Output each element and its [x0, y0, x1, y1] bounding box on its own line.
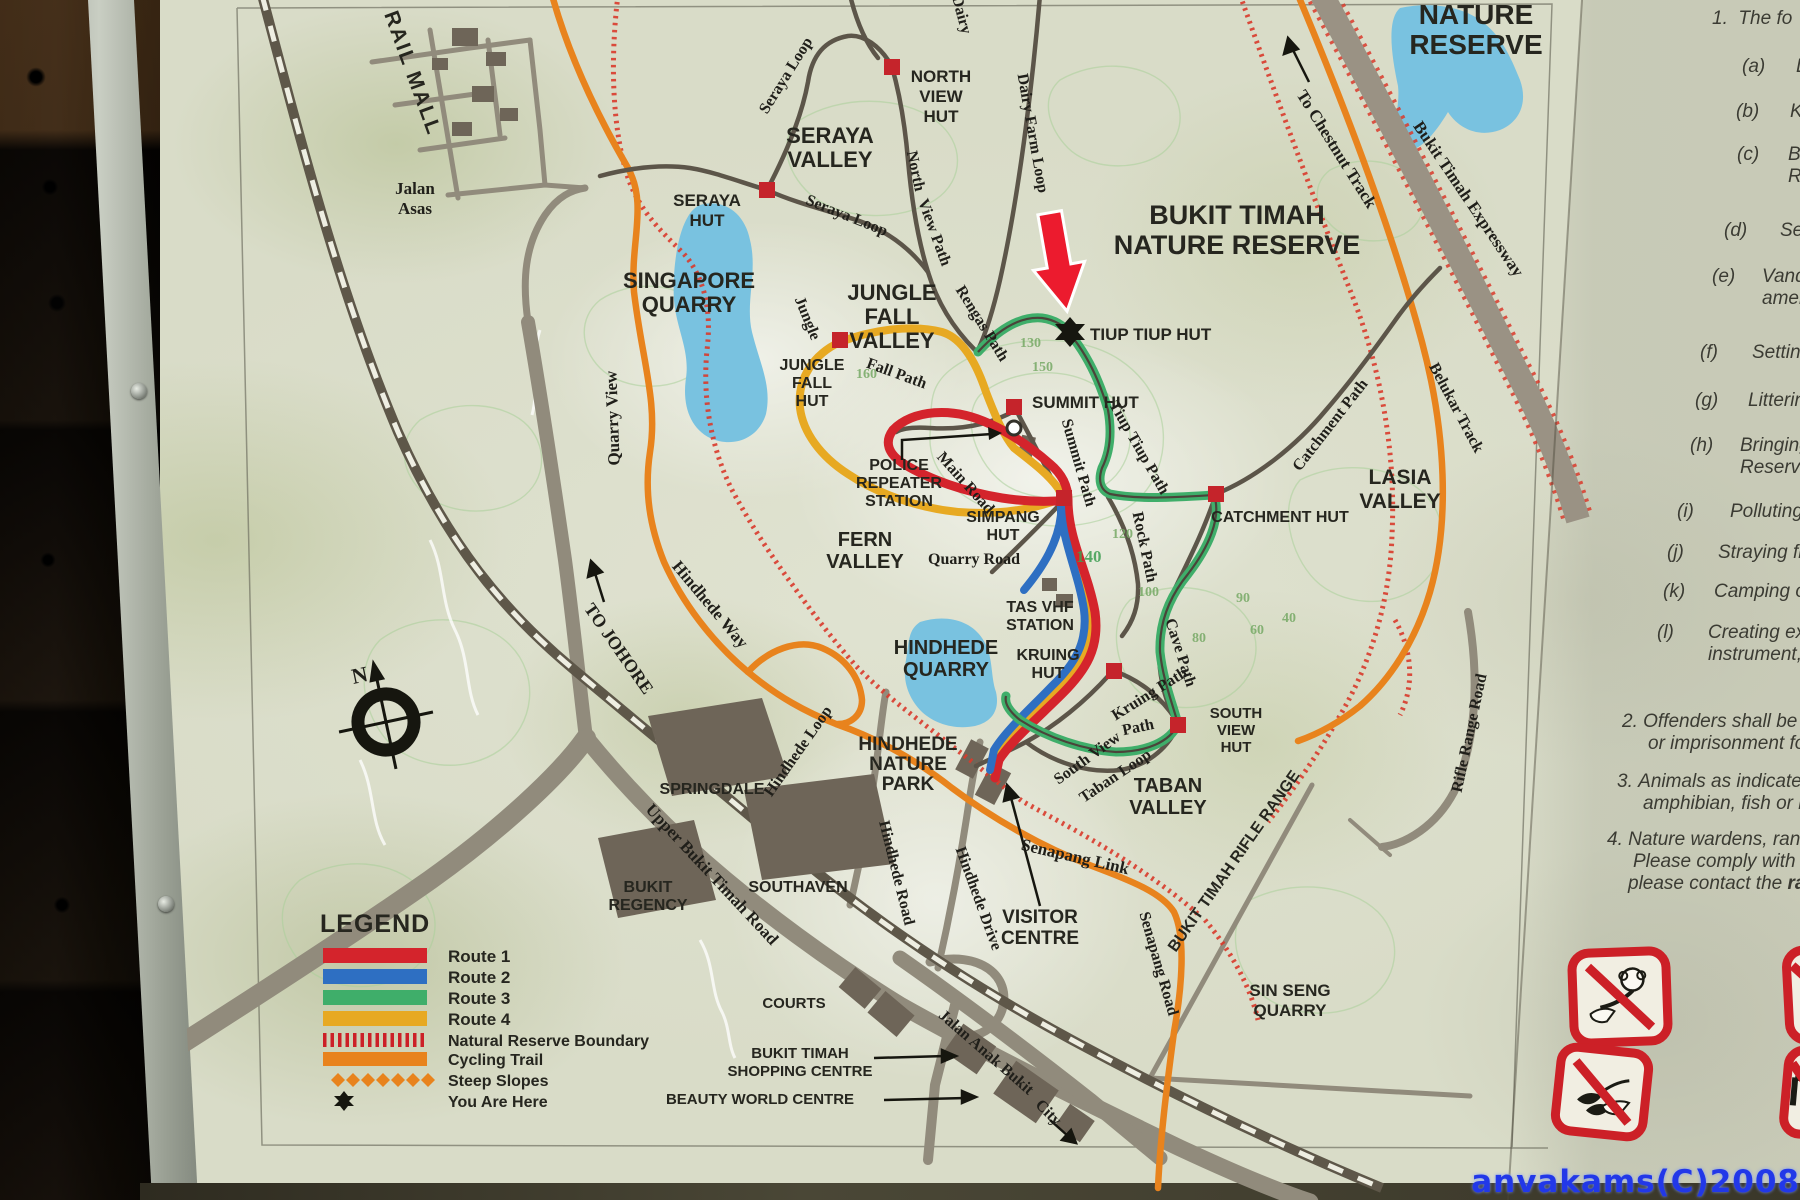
label-singapore-quarry: SINGAPORE: [623, 268, 755, 293]
legend-route3-label: Route 3: [448, 989, 510, 1008]
north-view-hut-marker: [884, 59, 900, 75]
svg-text:130: 130: [1020, 336, 1041, 351]
legend-steep-label: Steep Slopes: [448, 1073, 549, 1090]
singapore-quarry-lake: [674, 203, 768, 442]
svg-text:PARK: PARK: [882, 774, 935, 795]
label-catchment-path: Catchment Path: [1289, 376, 1371, 474]
svg-text:HUT: HUT: [1032, 665, 1065, 682]
svg-text:HUT: HUT: [987, 527, 1020, 544]
legend-route2-swatch: [323, 969, 427, 984]
label-sin-seng-quarry: SIN SENG: [1249, 981, 1330, 1000]
svg-text:RESERVE: RESERVE: [1409, 29, 1542, 60]
partial-prohibition-icon: [1786, 946, 1800, 1041]
label-catchment-hut: CATCHMENT HUT: [1211, 509, 1349, 526]
label-rock-path: Rock Path: [1129, 510, 1161, 584]
label-hindhede-quarry: HINDHEDE: [894, 637, 998, 659]
svg-text:Asas: Asas: [398, 199, 432, 218]
label-tas-vhf: TAS VHF: [1006, 599, 1073, 616]
label-senapang-road: Senapang Road: [1135, 910, 1181, 1018]
svg-text:VALLEY: VALLEY: [849, 328, 934, 353]
svg-text:CENTRE: CENTRE: [1001, 928, 1079, 949]
svg-text:40: 40: [1282, 611, 1296, 626]
south-view-hut-marker: [1170, 717, 1186, 733]
svg-text:120: 120: [1112, 527, 1133, 542]
svg-text:HUT: HUT: [924, 107, 960, 126]
svg-text:NATURE RESERVE: NATURE RESERVE: [1114, 230, 1361, 260]
label-courts: COURTS: [762, 995, 825, 1012]
legend-here-label: You Are Here: [448, 1094, 548, 1111]
to-johore-arrow-icon: [588, 561, 604, 602]
label-south-view-hut: SOUTH: [1210, 705, 1263, 722]
svg-text:REGENCY: REGENCY: [608, 897, 687, 914]
svg-text:100: 100: [1138, 585, 1159, 600]
svg-text:QUARRY: QUARRY: [903, 659, 990, 681]
svg-text:VALLEY: VALLEY: [826, 551, 904, 573]
svg-text:VALLEY: VALLEY: [1129, 797, 1207, 819]
label-btnr-title: BUKIT TIMAH: [1149, 200, 1324, 230]
rifle-range-lane: [1150, 1078, 1470, 1096]
frame-screw-icon: [158, 896, 174, 912]
svg-text:NATURE: NATURE: [869, 754, 947, 775]
watermark: anvakams(C)2008: [1471, 1164, 1800, 1200]
label-lasia-valley: LASIA: [1369, 466, 1432, 489]
label-jungle-fall-hut: JUNGLE: [780, 357, 845, 374]
svg-text:VALLEY: VALLEY: [1359, 490, 1440, 513]
svg-text:VALLEY: VALLEY: [787, 147, 872, 172]
frame-screw-icon: [131, 383, 147, 399]
partial-prohibition-icon: [1782, 1049, 1800, 1141]
label-jungle-word: Jungle: [791, 294, 824, 342]
svg-text:80: 80: [1192, 631, 1206, 646]
label-north-view-hut: NORTH: [911, 67, 971, 86]
legend-route1-swatch: [323, 948, 427, 963]
label-seraya-hut: SERAYA: [673, 191, 741, 210]
legend-steep-slopes-swatch: [331, 1073, 435, 1087]
svg-text:FALL: FALL: [792, 375, 832, 392]
rule-1: 1. The fo: [1712, 8, 1792, 30]
compass-rose-icon: N: [326, 649, 443, 779]
label-kruing-hut: KRUING: [1016, 647, 1079, 664]
label-hindhede-drive: Hindhede Drive: [952, 844, 1005, 952]
label-tiup-tiup-hut: TIUP TIUP HUT: [1090, 325, 1212, 344]
legend-cycling-swatch: [323, 1052, 427, 1066]
svg-text:VIEW: VIEW: [919, 87, 963, 106]
dairy-farm-loop-path: [978, 0, 1040, 350]
svg-text:60: 60: [1250, 623, 1264, 638]
svg-text:QUARRY: QUARRY: [1253, 1001, 1327, 1020]
legend-boundary-label: Natural Reserve Boundary: [448, 1033, 649, 1050]
label-bukit-regency: BUKIT: [624, 879, 673, 896]
legend: LEGEND Route 1 Route 2 Route 3 Route 4 N…: [320, 910, 649, 1111]
label-path-word: Path: [1121, 716, 1156, 739]
legend-title: LEGEND: [320, 910, 430, 938]
compass-n-label: N: [349, 661, 370, 689]
no-plucking-plants-icon: [1554, 1046, 1650, 1139]
label-seraya-valley: SERAYA: [786, 123, 874, 148]
svg-text:HUT: HUT: [690, 211, 726, 230]
legend-route3-swatch: [323, 990, 427, 1005]
svg-text:90: 90: [1236, 591, 1250, 606]
svg-text:150: 150: [1032, 360, 1053, 375]
label-quarry-view: Quarry View: [601, 370, 623, 466]
legend-route2-label: Route 2: [448, 968, 510, 987]
svg-text:STATION: STATION: [865, 493, 933, 510]
label-nature-reserve-top: NATURE: [1419, 0, 1534, 30]
svg-text:SHOPPING CENTRE: SHOPPING CENTRE: [727, 1063, 872, 1080]
svg-text:140: 140: [1076, 547, 1102, 566]
label-hindhede-nature-park: HINDHEDE: [858, 734, 957, 755]
kruing-hut-marker: [1106, 663, 1122, 679]
label-fern-valley: FERN: [838, 529, 892, 551]
shopping-centre-arrow-icon: [874, 1050, 956, 1062]
map-svg: N RAIL MALL SINGAPORE QUARRY SERAYA HUT …: [0, 0, 1800, 1200]
no-feeding-monkeys-icon: [1571, 950, 1668, 1043]
label-simpang-hut: SIMPANG: [966, 509, 1039, 526]
label-bt-shopping: BUKIT TIMAH: [751, 1045, 849, 1062]
seraya-hut-marker: [759, 182, 775, 198]
catchment-hut-marker: [1208, 486, 1224, 502]
label-police-repeater: POLICE: [869, 457, 929, 474]
label-hindhede-road: Hindhede Road: [875, 819, 917, 927]
svg-text:STATION: STATION: [1006, 617, 1074, 634]
label-visitor-centre: VISITOR: [1002, 907, 1078, 928]
label-southaven: SOUTHAVEN: [748, 879, 847, 896]
svg-text:160: 160: [856, 367, 877, 382]
red-location-arrow-icon: [1024, 208, 1093, 316]
svg-text:VIEW: VIEW: [1217, 722, 1256, 739]
label-taban-valley: TABAN: [1134, 775, 1203, 797]
to-chestnut-arrow-icon: [1284, 38, 1309, 82]
tas-vhf-building: [1042, 578, 1057, 591]
svg-text:REPEATER: REPEATER: [856, 475, 942, 492]
svg-text:HUT: HUT: [796, 393, 829, 410]
legend-route4-label: Route 4: [448, 1010, 511, 1029]
label-north-view-path: North: [903, 149, 928, 193]
label-jalan-asas: Jalan: [395, 179, 435, 198]
label-senapang-link: Senapang Link: [1019, 835, 1131, 878]
legend-route4-swatch: [323, 1011, 427, 1026]
label-rifle-range-road: Rifle Range Road: [1449, 672, 1491, 794]
svg-text:QUARRY: QUARRY: [642, 292, 737, 317]
svg-text:HUT: HUT: [1221, 739, 1252, 756]
summit-hut-marker: [1006, 399, 1022, 415]
catchment-path: [1216, 268, 1440, 494]
label-beauty-world: BEAUTY WORLD CENTRE: [666, 1091, 854, 1108]
simpang-hut-marker: [1056, 490, 1072, 506]
svg-text:FALL: FALL: [865, 304, 920, 329]
signboard-photo: N RAIL MALL SINGAPORE QUARRY SERAYA HUT …: [0, 0, 1800, 1200]
jungle-fall-hut-marker: [832, 332, 848, 348]
legend-cycling-label: Cycling Trail: [448, 1052, 543, 1069]
label-jungle-fall-valley: JUNGLE: [847, 280, 936, 305]
legend-you-are-here-star-icon: [334, 1091, 354, 1111]
label-springdale: SPRINGDALE: [660, 781, 765, 798]
legend-route1-label: Route 1: [448, 947, 510, 966]
label-quarry-road: Quarry Road: [928, 551, 1020, 568]
